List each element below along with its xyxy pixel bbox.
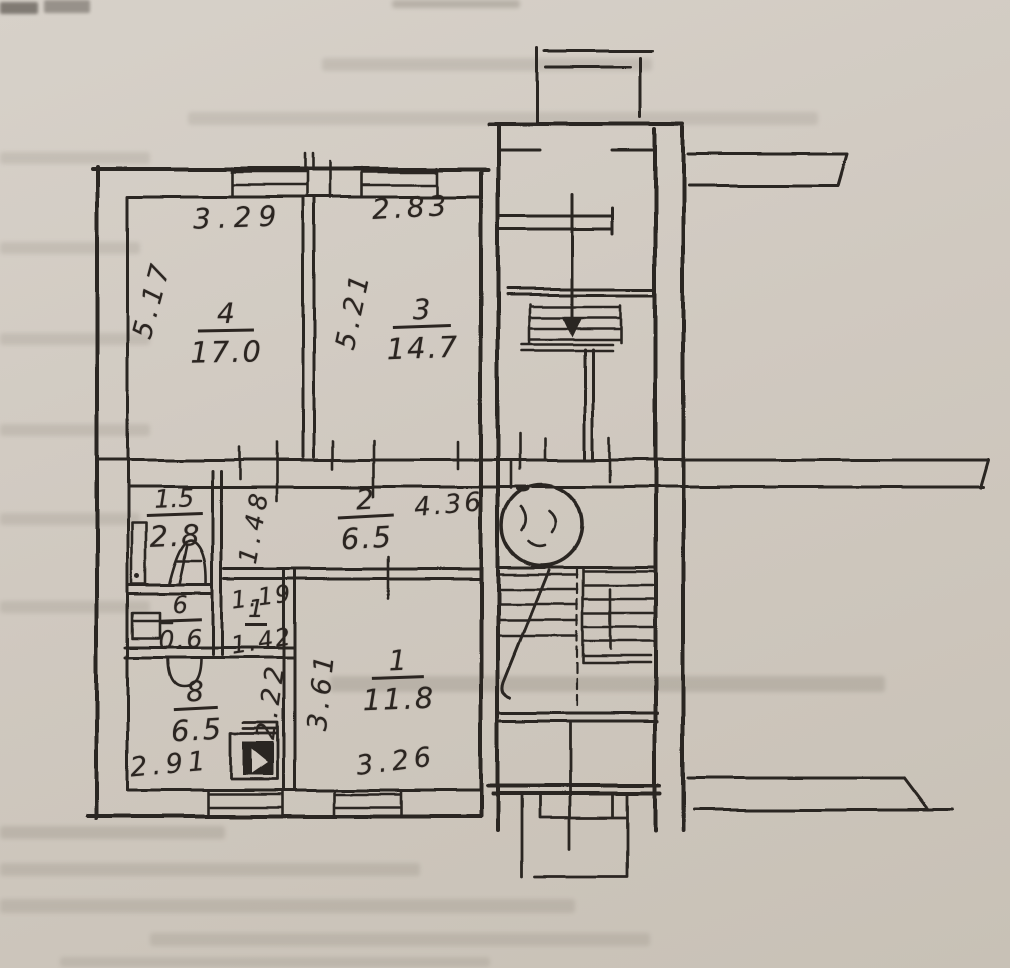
room-8-label: 8 6.5 [168, 676, 224, 749]
room-6-label: 6 0.6 [157, 592, 205, 655]
partition-walls [97, 198, 988, 790]
room-number: 4 [198, 299, 255, 333]
side-wing-walls [688, 154, 953, 810]
floor-plan-drawing [0, 0, 1010, 968]
room-4-label: 4 17.0 [189, 298, 263, 370]
room-area: 6.5 [340, 517, 394, 557]
bathtub-symbol [132, 523, 146, 584]
entrance-porch [537, 48, 652, 122]
room-number: 1 [371, 645, 424, 680]
lower-stair-flights [498, 567, 652, 707]
room-number: 3 [392, 294, 451, 329]
entrance-steps [522, 723, 627, 877]
room-area: 14.7 [386, 327, 460, 367]
room-2-label: 2 6.5 [336, 484, 396, 557]
room-area: 0.6 [158, 621, 205, 655]
room-number: 2 [336, 484, 394, 520]
room-1-label: 1 11.8 [361, 645, 436, 718]
refuse-chute-circle [502, 485, 582, 565]
room-area: 6.5 [170, 709, 224, 749]
room-area: 11.8 [362, 678, 436, 718]
room-number: 6 [159, 592, 202, 623]
room-number: 1.5 [146, 485, 203, 517]
dim-hall-width: 4.36 [413, 487, 485, 523]
dim-room4-width: 3.29 [192, 199, 283, 235]
room-number: 8 [172, 676, 218, 712]
scanned-floor-plan-page: 4 17.0 3 14.7 2 6.5 1 11.8 8 6.5 6 0.6 1… [0, 0, 1010, 968]
dim-room3-width: 2.83 [371, 189, 451, 226]
room-area: 2.8 [149, 515, 202, 554]
room-area: 17.0 [190, 332, 263, 370]
bathroom-label: 1.5 2.8 [146, 485, 204, 554]
room-3-label: 3 14.7 [385, 294, 460, 367]
